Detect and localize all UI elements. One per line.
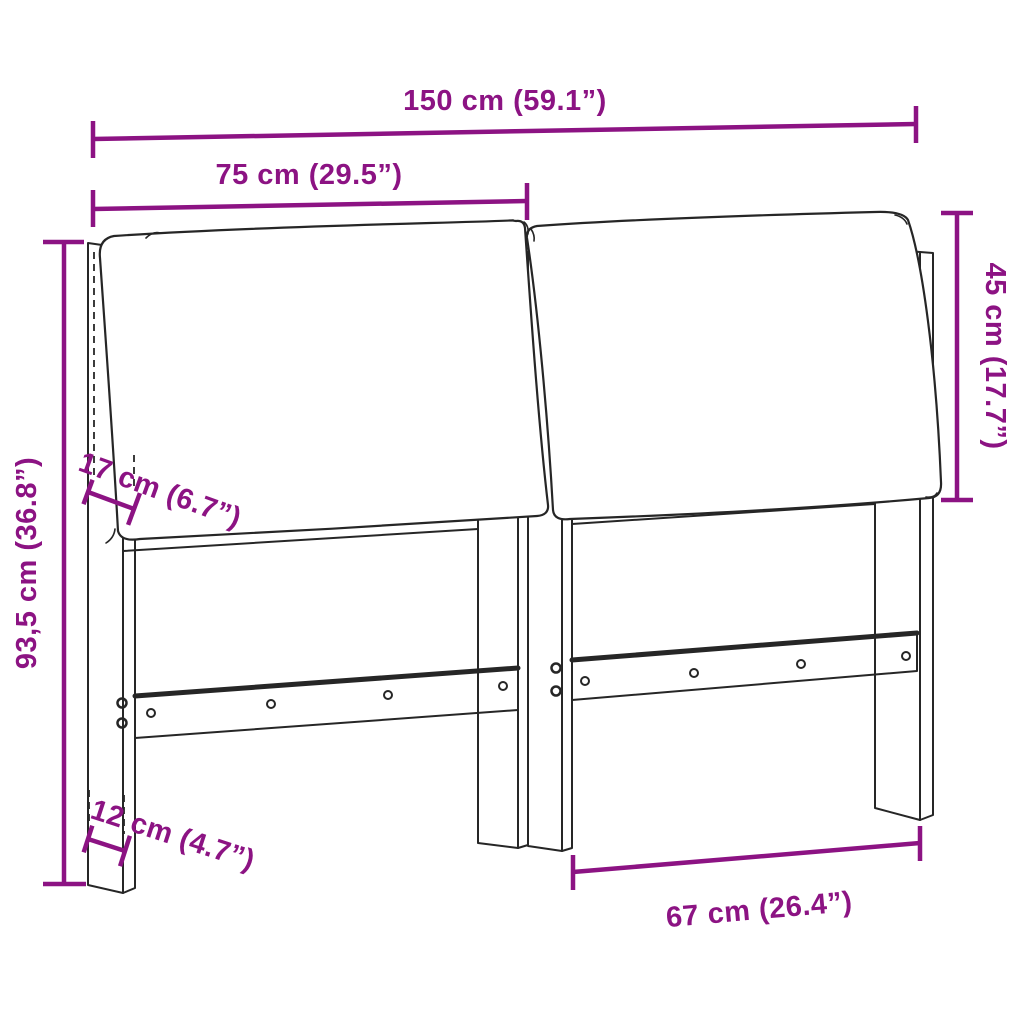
dim-label-cushion-height: 45 cm (17.7”) bbox=[979, 262, 1011, 449]
dim-label-total-height: 93,5 cm (36.8”) bbox=[11, 457, 43, 669]
left-rail bbox=[135, 668, 518, 738]
cushions bbox=[100, 212, 941, 543]
dim-label-leg-span: 67 cm (26.4”) bbox=[665, 886, 854, 934]
right-rail bbox=[572, 633, 917, 700]
screw-icon bbox=[147, 709, 155, 717]
screw-icon bbox=[690, 669, 698, 677]
screw-icon bbox=[552, 664, 561, 673]
screw-icon bbox=[384, 691, 392, 699]
screw-icon bbox=[552, 687, 561, 696]
left-rail-screws bbox=[147, 682, 507, 717]
screw-icon bbox=[797, 660, 805, 668]
right-leg-screws bbox=[552, 664, 561, 696]
right-rail-top-edge bbox=[572, 633, 917, 660]
dim-line bbox=[93, 201, 527, 209]
dim-line bbox=[573, 843, 920, 872]
dim-label-total-width: 150 cm (59.1”) bbox=[403, 85, 607, 117]
right-cushion bbox=[527, 212, 941, 519]
dim-cushion-height bbox=[941, 213, 973, 500]
dim-line bbox=[93, 124, 916, 139]
screw-icon bbox=[267, 700, 275, 708]
screw-icon bbox=[499, 682, 507, 690]
dim-leg-span bbox=[573, 826, 920, 890]
dimension-diagram-page: 150 cm (59.1”) 75 cm (29.5”) 45 cm (17.7… bbox=[0, 0, 1024, 1024]
dim-line bbox=[88, 839, 125, 851]
dim-total-height bbox=[43, 242, 86, 884]
dim-label-leg-depth: 12 cm (4.7”) bbox=[87, 794, 259, 877]
screw-icon bbox=[902, 652, 910, 660]
screw-icon bbox=[581, 677, 589, 685]
dim-label-half-width: 75 cm (29.5”) bbox=[215, 159, 402, 191]
left-rail-top-edge bbox=[135, 668, 518, 696]
headboard-dimension-diagram: 150 cm (59.1”) 75 cm (29.5”) 45 cm (17.7… bbox=[0, 0, 1024, 1024]
